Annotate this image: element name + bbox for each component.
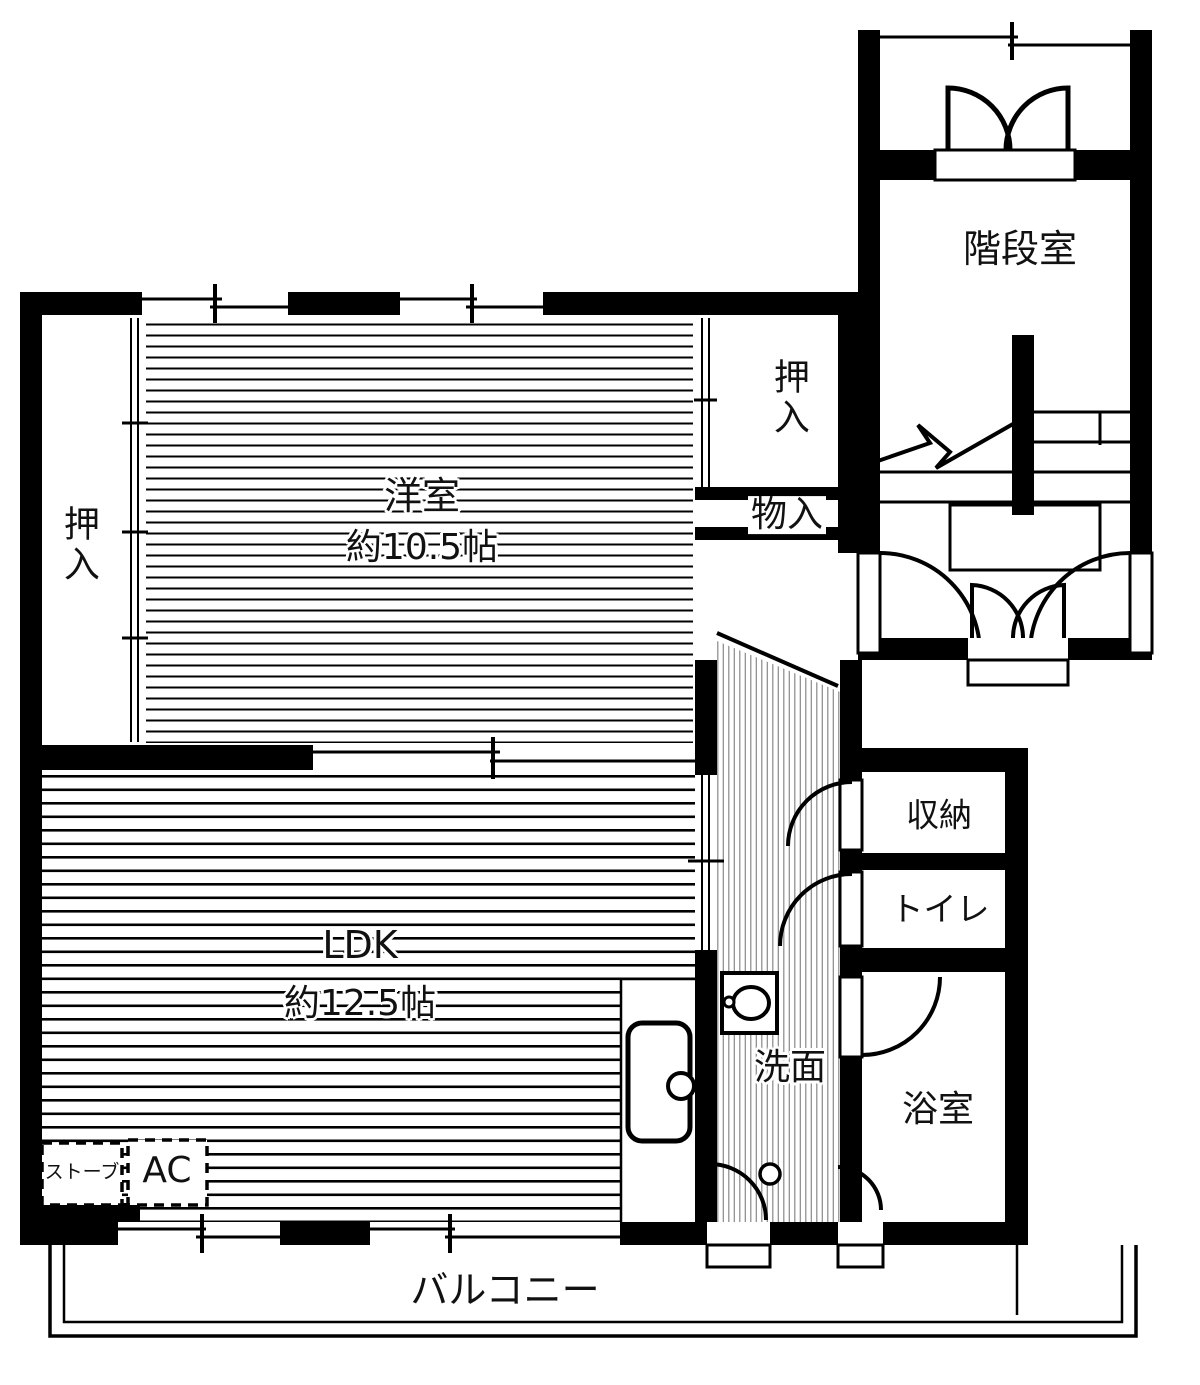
window-stairwell bbox=[880, 30, 1130, 52]
hallway-floor bbox=[717, 633, 840, 1222]
toilet-label: トイレ bbox=[891, 893, 990, 928]
washroom-label: 洗面 bbox=[754, 1049, 826, 1087]
stairs bbox=[875, 412, 1130, 570]
window-balcony-1 bbox=[118, 1222, 280, 1245]
stairwell-label: 階段室 bbox=[963, 230, 1077, 270]
wash-basin bbox=[722, 973, 777, 1033]
neighbour-door-leaf bbox=[1130, 553, 1152, 653]
toilet-door-leaf bbox=[840, 872, 862, 946]
door-knob-icon bbox=[760, 1164, 780, 1184]
ac-label: AC bbox=[142, 1152, 191, 1190]
floor-plan: 階段室 押入 押入 物入 洋室 約10.5帖 LDK 約12.5帖 収納 トイレ… bbox=[0, 0, 1200, 1385]
bathroom-balcony-threshold bbox=[838, 1245, 883, 1267]
western-room-label: 洋室 bbox=[384, 477, 460, 517]
basin-tap-icon bbox=[724, 997, 734, 1007]
ldk-label: LDK bbox=[322, 926, 397, 966]
closet-left-label: 押入 bbox=[59, 505, 97, 585]
storage-label: 収納 bbox=[906, 799, 972, 834]
landing-door-threshold bbox=[968, 660, 1068, 685]
ldk-size: 約12.5帖 bbox=[284, 985, 436, 1023]
closet-right-label: 押入 bbox=[769, 358, 807, 438]
vestibule-door-bar bbox=[935, 150, 1075, 180]
storage-small-label: 物入 bbox=[748, 496, 826, 534]
balcony-label: バルコニー bbox=[410, 1271, 599, 1311]
bathroom-door-arc bbox=[862, 977, 940, 1055]
stove-label: ストーブ bbox=[45, 1163, 120, 1183]
storage-door-leaf bbox=[840, 780, 862, 850]
vestibule-door-left-arc bbox=[948, 88, 1010, 150]
vestibule-door-right-arc bbox=[1006, 88, 1068, 150]
kitchen-counter bbox=[620, 978, 695, 1222]
washroom-balcony-threshold bbox=[707, 1245, 770, 1267]
entry-door-leaf bbox=[858, 553, 880, 653]
window-balcony-2 bbox=[370, 1222, 620, 1245]
sink-drain-icon bbox=[668, 1073, 694, 1099]
bathroom-label: 浴室 bbox=[902, 1091, 974, 1129]
western-room-size: 約10.5帖 bbox=[346, 529, 498, 567]
stair-break-line bbox=[875, 424, 1013, 468]
basin-bowl-icon bbox=[733, 987, 769, 1019]
bathroom-door-leaf bbox=[840, 977, 862, 1057]
